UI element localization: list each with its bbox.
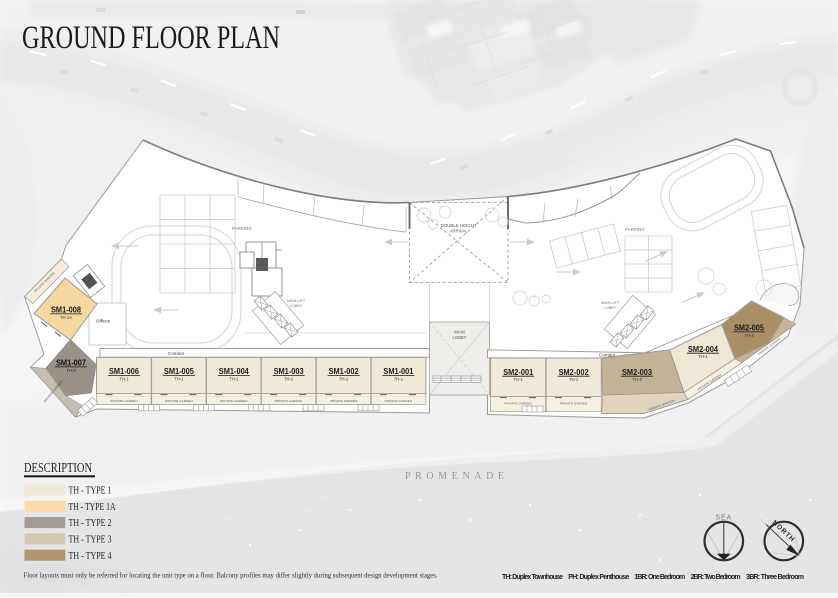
svg-text:TH-1A: TH-1A [60,315,72,320]
svg-text:LOBBY: LOBBY [604,306,617,310]
svg-text:SM1-006: SM1-006 [109,367,139,376]
svg-text:Floor layouts must only be ref: Floor layouts must only be referred for … [24,572,438,580]
svg-text:TH-2: TH-2 [66,368,76,373]
svg-text:MAIN LIFT: MAIN LIFT [601,301,620,305]
svg-text:SM2-002: SM2-002 [559,368,589,377]
svg-text:TH-1: TH-1 [119,377,129,382]
svg-text:TH-4: TH-4 [744,333,754,338]
svg-text:DOUBLE HEIGHT: DOUBLE HEIGHT [441,223,477,228]
svg-text:PH: Duplex Penthouse: PH: Duplex Penthouse [568,574,629,581]
svg-text:PRIVATE GARDEN: PRIVATE GARDEN [275,399,302,403]
svg-text:PRIVATE GARDEN: PRIVATE GARDEN [110,399,137,403]
svg-text:PRIVATE GARDEN: PRIVATE GARDEN [385,399,412,403]
svg-text:PARKING: PARKING [232,226,252,231]
svg-text:PRIVATE GARDEN: PRIVATE GARDEN [560,401,587,405]
svg-text:SM2-004: SM2-004 [688,345,718,354]
svg-text:PROMENADE: PROMENADE [405,471,509,482]
svg-text:TH-3: TH-3 [632,377,642,382]
svg-text:SM2-003: SM2-003 [622,368,652,377]
svg-text:MAIN: MAIN [454,330,464,335]
svg-text:TH-1: TH-1 [394,377,404,382]
svg-text:SM2-001: SM2-001 [503,368,533,377]
svg-text:DESCRIPTION: DESCRIPTION [24,461,92,476]
svg-text:TH: Duplex Townhouse: TH: Duplex Townhouse [502,574,563,581]
svg-text:MAIN LIFT: MAIN LIFT [287,299,306,303]
svg-text:ARRIVAL: ARRIVAL [449,229,468,234]
svg-text:SM1-005: SM1-005 [164,367,194,376]
svg-text:TH-1: TH-1 [339,377,349,382]
svg-text:Corridor: Corridor [168,351,185,356]
svg-text:PRIVATE GARDEN: PRIVATE GARDEN [504,401,531,405]
svg-text:SM2-005: SM2-005 [734,324,764,333]
svg-text:Offices: Offices [96,319,111,324]
svg-text:SM1-001: SM1-001 [383,367,413,376]
svg-text:TH-1: TH-1 [514,377,524,382]
svg-text:2BR: Two Bedroom: 2BR: Two Bedroom [691,574,741,581]
svg-text:1BR: One Bedroom: 1BR: One Bedroom [634,574,685,581]
svg-text:SEA: SEA [715,513,732,522]
svg-text:TH - TYPE 2: TH - TYPE 2 [69,518,112,529]
svg-text:TH-1: TH-1 [698,354,708,359]
svg-text:PRIVATE GARDEN: PRIVATE GARDEN [330,399,357,403]
svg-text:TH-1: TH-1 [229,377,239,382]
svg-text:TH - TYPE 4: TH - TYPE 4 [69,551,112,562]
svg-text:LOBBY: LOBBY [290,304,303,308]
svg-text:TH - TYPE 1: TH - TYPE 1 [69,486,112,497]
svg-text:LOBBY: LOBBY [453,335,467,340]
svg-text:SM1-004: SM1-004 [219,367,249,376]
svg-text:TH-1: TH-1 [569,377,579,382]
svg-text:3BR: Three Bedroom: 3BR: Three Bedroom [746,574,804,581]
svg-text:TH - TYPE 1A: TH - TYPE 1A [69,502,116,513]
svg-text:GROUND FLOOR PLAN: GROUND FLOOR PLAN [22,20,280,56]
svg-text:PARKING: PARKING [625,227,645,232]
svg-text:TH-1: TH-1 [174,377,184,382]
svg-text:SM1-007: SM1-007 [56,359,86,368]
svg-text:SM1-008: SM1-008 [51,306,81,315]
svg-text:TH-1: TH-1 [284,377,294,382]
svg-text:SM1-003: SM1-003 [274,367,304,376]
svg-text:TH - TYPE 3: TH - TYPE 3 [69,535,112,546]
svg-text:PRIVATE GARDEN: PRIVATE GARDEN [165,399,192,403]
svg-text:SM1-002: SM1-002 [329,367,359,376]
svg-text:PRIVATE GARDEN: PRIVATE GARDEN [220,399,247,403]
